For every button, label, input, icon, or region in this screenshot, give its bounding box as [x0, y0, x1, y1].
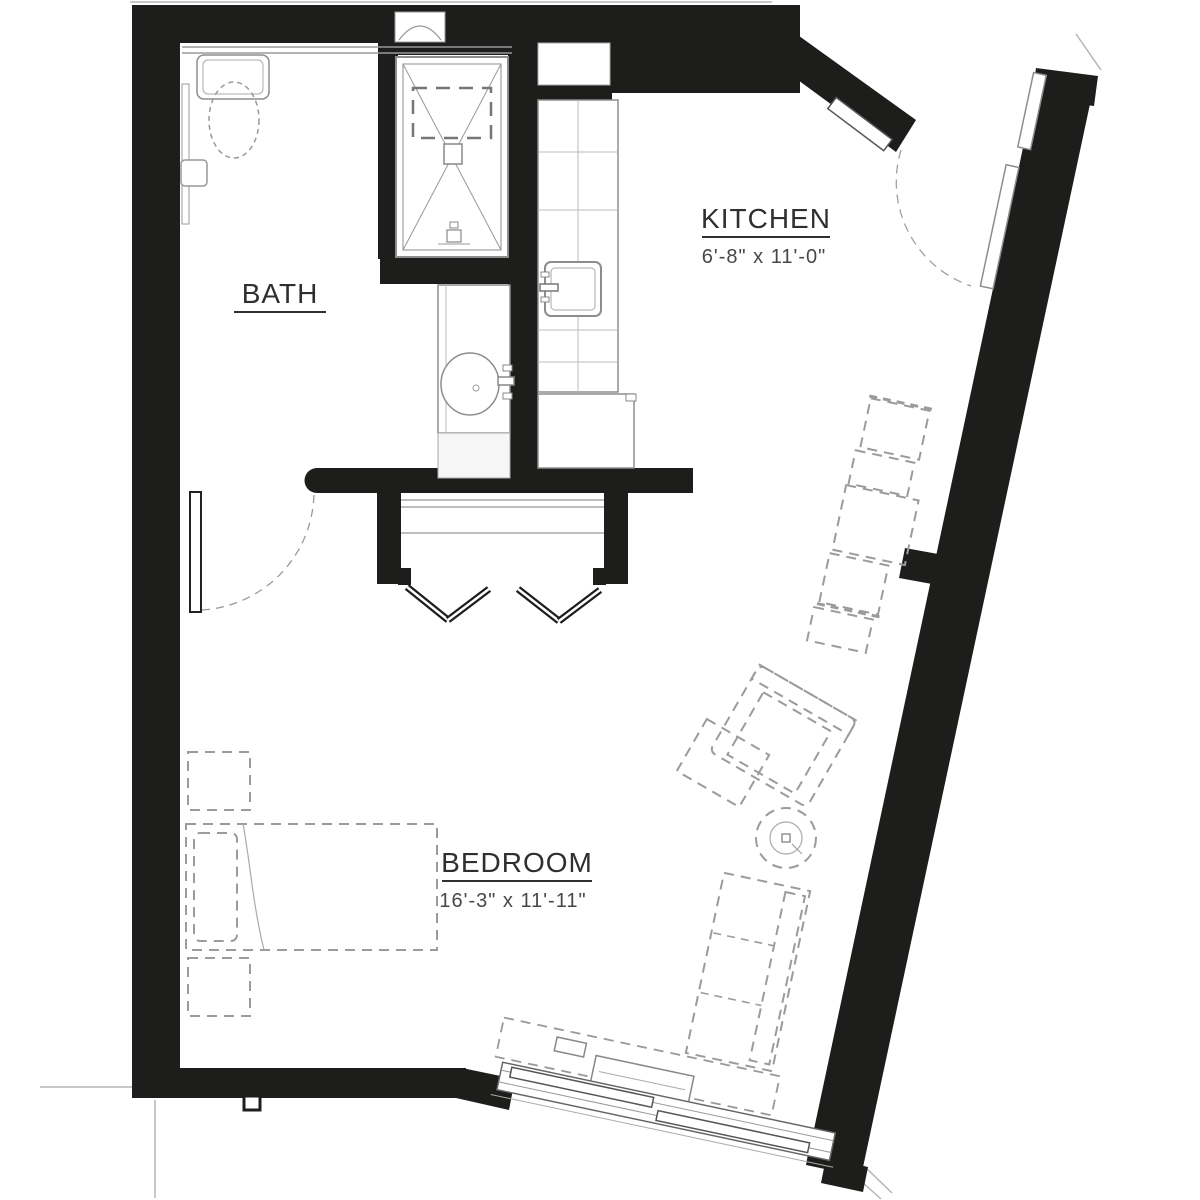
sofa-back-cushions [750, 892, 805, 1064]
bed [186, 824, 437, 950]
top-wall-left [132, 5, 612, 43]
vanity-sink-bowl [441, 353, 499, 415]
shower-bottom-wall [380, 257, 538, 284]
bifold-leaf-4-face [559, 590, 600, 621]
bifold-leaf-1-face [407, 587, 448, 620]
console-item-small [554, 1037, 586, 1057]
sofa-cushion-line-1 [713, 933, 774, 946]
shower-valve [444, 144, 462, 164]
side-table-base [782, 834, 790, 842]
bath-door-swing-arc [202, 489, 314, 610]
kitchen-niche [538, 43, 610, 85]
bedroom-furniture [186, 752, 437, 1016]
bottom-wall-post [244, 1096, 260, 1110]
ottoman-group [677, 719, 769, 807]
wall-continuation-top-right [1076, 34, 1101, 70]
blanket-fold-line [243, 824, 264, 950]
toilet-tank [197, 55, 269, 99]
bath-door [190, 489, 314, 612]
kitchen-fixtures [538, 100, 636, 468]
bath-kitchen-dividing-wall [508, 5, 538, 483]
vanity-knob-1 [503, 365, 512, 371]
armchair-seat [727, 692, 831, 793]
closet [401, 500, 604, 621]
closet-jamb-right [593, 568, 606, 585]
floor-plan-drawing: BATH KITCHEN 6'-8" x 11'-0" BEDROOM 16'-… [0, 0, 1200, 1200]
vanity [438, 285, 514, 478]
bottom-wall [132, 1068, 466, 1098]
dining-chair-3 [819, 553, 888, 614]
wall-continuation-bottom-right-2 [864, 1166, 892, 1193]
shower-control [450, 222, 458, 228]
grab-bar [182, 84, 189, 224]
dining-chair-1 [860, 398, 929, 459]
bath-door-leaf [190, 492, 201, 612]
bifold-closet-doors [407, 587, 600, 621]
left-wall [132, 5, 180, 1098]
dining-set [807, 394, 938, 657]
shower [396, 57, 508, 257]
bifold-leaf-2-face [448, 589, 489, 620]
kitchen-knob-2 [541, 297, 549, 302]
closet-right-wall [604, 487, 628, 584]
nightstand-top [188, 752, 250, 810]
top-wall-right [610, 5, 800, 93]
closet-left-wall [377, 487, 401, 584]
bedroom-dims: 16'-3" x 11'-11" [439, 890, 586, 912]
refrigerator [538, 394, 634, 468]
refrigerator-handle [626, 394, 636, 401]
kitchen-faucet [540, 284, 558, 291]
sofa-group [686, 873, 810, 1071]
kitchen-label: KITCHEN [701, 203, 831, 234]
vanity-faucet [498, 377, 514, 385]
sofa-cushion-line-2 [701, 993, 762, 1006]
closet-jamb-left [398, 568, 411, 585]
side-table-group [756, 808, 816, 868]
armchair-group [710, 665, 857, 808]
top-wall-niche [395, 12, 445, 42]
ottoman [677, 719, 769, 807]
vanity-knob-2 [503, 393, 512, 399]
kitchen-dims: 6'-8" x 11'-0" [702, 246, 826, 268]
armchair-back [752, 665, 857, 735]
shower-drain [447, 230, 461, 242]
vanity-cabinet [438, 433, 510, 478]
bedroom-label: BEDROOM [441, 847, 593, 878]
bifold-leaf-3-face [518, 589, 559, 621]
dining-chair-1-back [869, 396, 932, 409]
bathroom [181, 47, 514, 612]
floor-plan-page: BATH KITCHEN 6'-8" x 11'-0" BEDROOM 16'-… [0, 0, 1200, 1200]
sofa [686, 873, 810, 1071]
kitchen-knob-1 [541, 272, 549, 277]
pillow [194, 833, 237, 941]
bottom-window-group [488, 1018, 850, 1168]
paper-holder [181, 160, 207, 186]
bath-label: BATH [242, 278, 319, 309]
nightstand-bottom [188, 958, 250, 1016]
right-angled-wall [810, 96, 1090, 1172]
armchair [710, 665, 857, 808]
entry-door-swing-arc [896, 150, 971, 286]
